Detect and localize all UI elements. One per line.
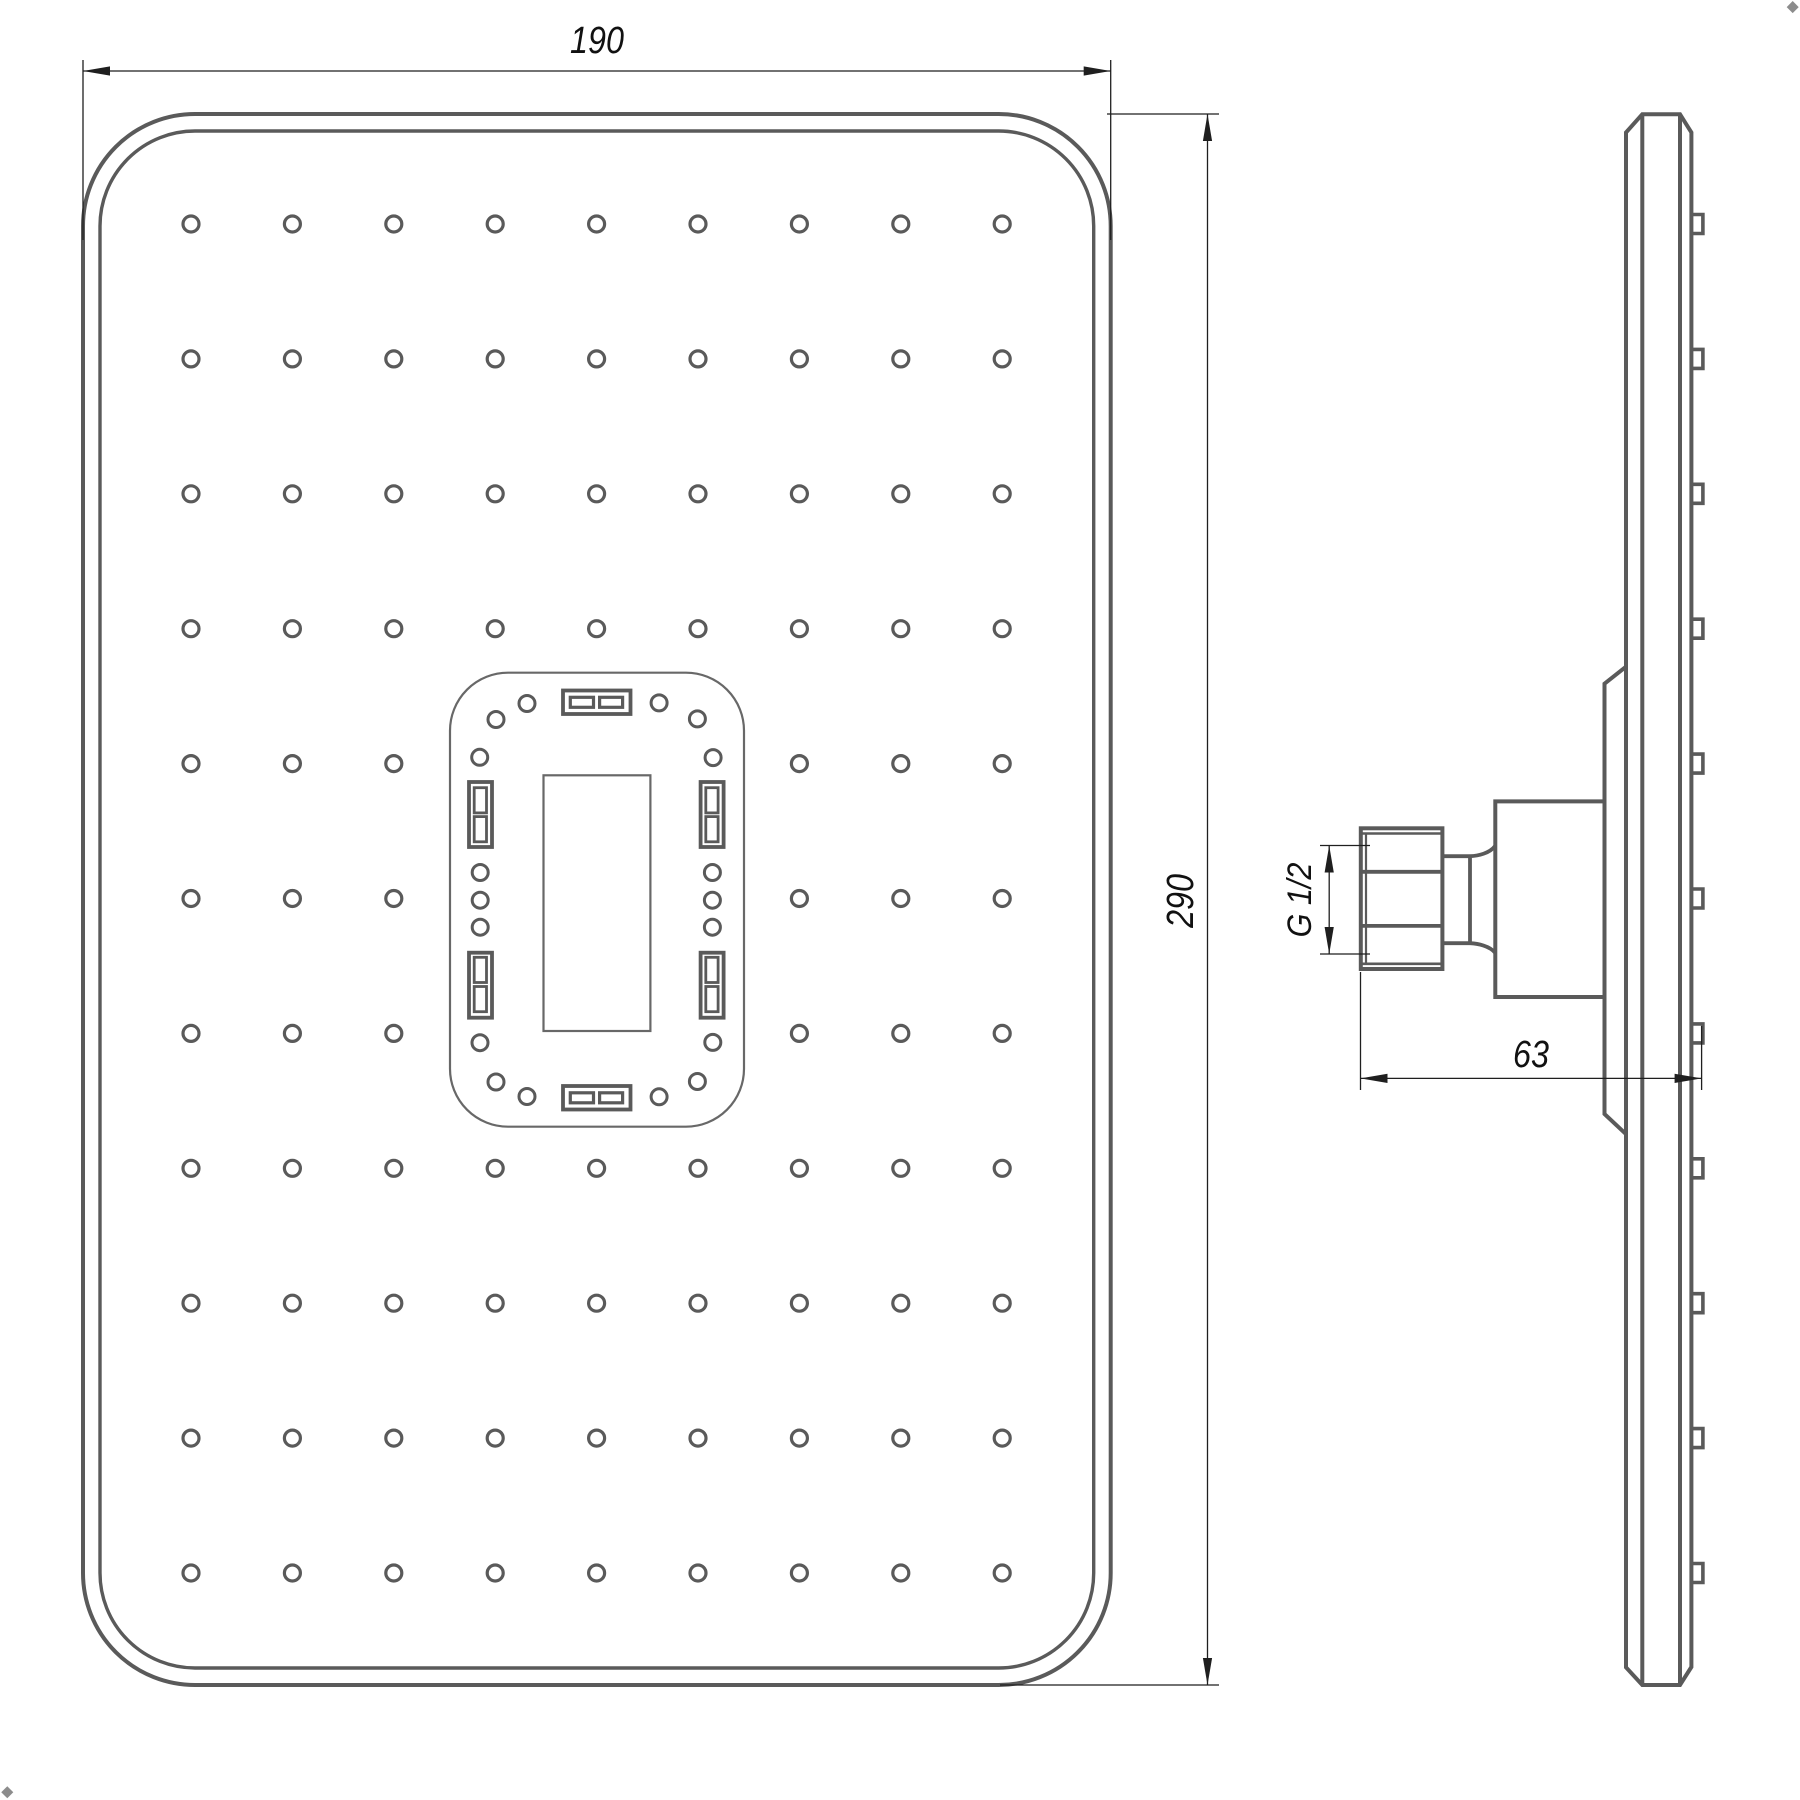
svg-text:G 1/2: G 1/2 (1281, 863, 1319, 938)
svg-text:190: 190 (570, 20, 624, 62)
svg-text:63: 63 (1513, 1034, 1549, 1076)
svg-text:290: 290 (1160, 874, 1202, 929)
